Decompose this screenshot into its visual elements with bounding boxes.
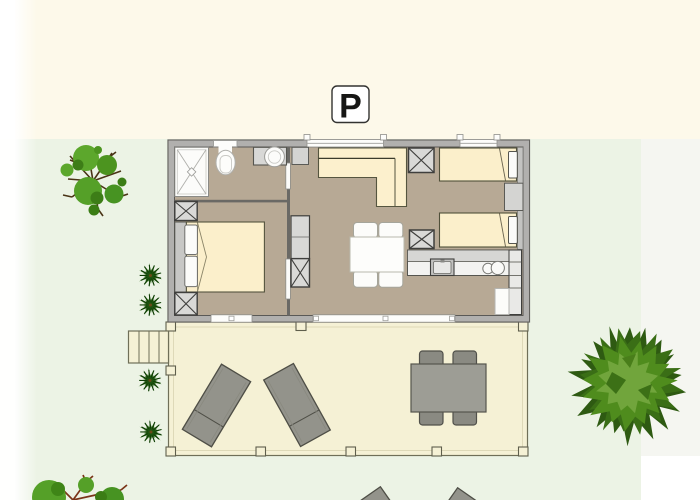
svg-text:P: P — [339, 88, 362, 126]
